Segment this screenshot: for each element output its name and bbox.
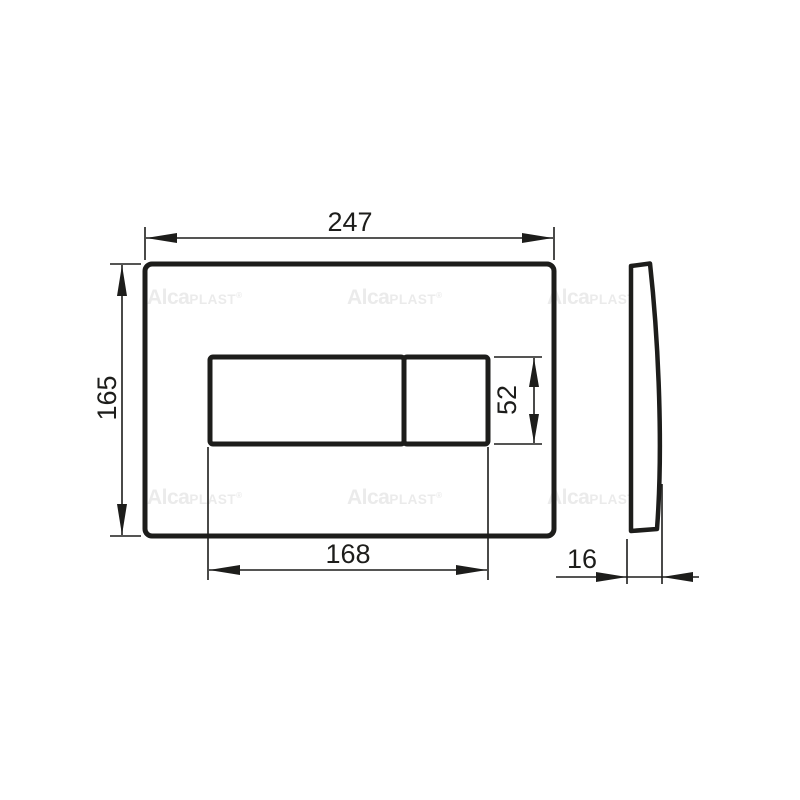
dimension-depth: 16 bbox=[556, 484, 699, 584]
arrowhead-right-icon bbox=[522, 233, 553, 243]
arrowhead-down-icon bbox=[529, 414, 539, 443]
dimension-value-button-height: 52 bbox=[492, 385, 522, 415]
arrowhead-up-icon bbox=[529, 358, 539, 387]
dimension-value-overall-height: 165 bbox=[92, 375, 122, 420]
arrowhead-right-icon bbox=[456, 565, 487, 575]
dimension-button-area-width: 168 bbox=[208, 447, 488, 580]
arrowhead-right-icon bbox=[596, 572, 627, 582]
arrowhead-left-icon bbox=[146, 233, 177, 243]
dimension-overall-width: 247 bbox=[145, 207, 554, 260]
dimension-overall-height: 165 bbox=[92, 264, 141, 536]
arrowhead-left-icon bbox=[662, 572, 693, 582]
arrowhead-up-icon bbox=[117, 265, 127, 296]
arrowhead-left-icon bbox=[209, 565, 240, 575]
technical-drawing-page: AlcaPLAST® AlcaPLAST® AlcaPLAST® AlcaPLA… bbox=[0, 0, 800, 800]
dimension-value-button-area-width: 168 bbox=[325, 539, 370, 569]
dimension-value-overall-width: 247 bbox=[327, 207, 372, 237]
arrowhead-down-icon bbox=[117, 504, 127, 535]
flush-plate-technical-drawing: 247 165 52 168 bbox=[0, 0, 800, 800]
dimension-button-height: 52 bbox=[492, 357, 542, 444]
small-flush-button bbox=[404, 357, 488, 444]
side-view bbox=[631, 264, 660, 532]
plate-profile-outline bbox=[631, 264, 660, 532]
large-flush-button bbox=[210, 357, 404, 444]
dimension-value-depth: 16 bbox=[567, 544, 597, 574]
